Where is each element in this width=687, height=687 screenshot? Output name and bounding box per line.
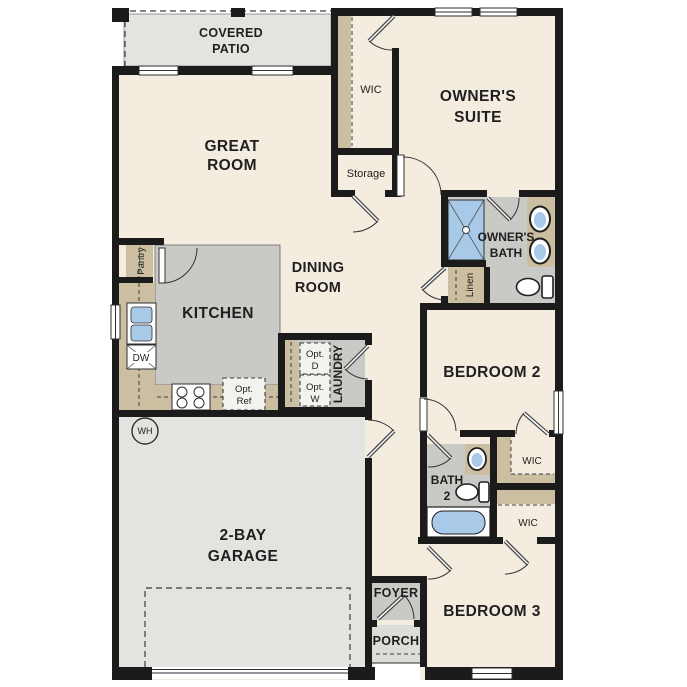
bath2-label-1: BATH — [431, 473, 463, 487]
bedroom2-label: BEDROOM 2 — [443, 364, 540, 381]
bedroom2-wic-label: WIC — [522, 456, 541, 467]
bath2-sink-icon — [468, 448, 486, 470]
owner-wic-label: WIC — [360, 84, 381, 96]
great-room-window-2 — [252, 66, 293, 75]
owners-bath-label-1: OWNER'S — [478, 230, 535, 244]
owners-suite-window-2 — [480, 8, 517, 16]
opt-washer-label-1: Opt. — [306, 382, 324, 393]
covered-patio-floor — [124, 14, 331, 66]
linen-label: Linen — [465, 273, 476, 297]
kitchen-label: KITCHEN — [182, 305, 254, 322]
wic3-top-shelf — [497, 490, 555, 504]
bedroom3-window — [472, 668, 512, 679]
kitchen-sink-icon — [127, 303, 156, 344]
outside-below-porch — [374, 663, 420, 680]
porch-label: PORCH — [373, 634, 420, 648]
dining-room-label-1: DINING — [292, 260, 345, 276]
owners-bath-label-2: BATH — [490, 246, 522, 260]
great-room-label-2: ROOM — [207, 157, 257, 174]
bedroom3-label: BEDROOM 3 — [443, 603, 540, 620]
wic2-bottom-shelf — [497, 474, 555, 483]
floorplan-canvas: COVERED PATIO GREAT ROOM WIC Storage OWN… — [0, 0, 687, 687]
bath2-tub-icon — [427, 507, 490, 537]
owners-toilet-icon — [517, 276, 554, 298]
dishwasher-label: DW — [133, 353, 150, 364]
owners-suite-window-1 — [435, 8, 472, 16]
opt-dryer-label-1: Opt. — [306, 349, 324, 360]
opt-washer-label-2: W — [311, 394, 320, 405]
owners-suite-label-2: SUITE — [454, 109, 502, 126]
opt-ref-label-2: Ref — [237, 396, 252, 407]
garage-label-1: 2-BAY — [219, 527, 266, 544]
owner-wic-shelf — [338, 15, 351, 148]
foyer-label: FOYER — [374, 586, 419, 600]
storage-label: Storage — [347, 168, 386, 180]
garage-label-2: GARAGE — [208, 548, 278, 565]
covered-patio-label-2: PATIO — [212, 42, 250, 56]
owners-suite-label-1: OWNER'S — [440, 88, 516, 105]
kitchen-window — [111, 305, 120, 339]
covered-patio-label-1: COVERED — [199, 26, 263, 40]
opt-dryer-label-2: D — [312, 361, 319, 372]
bath2-label-2: 2 — [444, 489, 451, 503]
range-icon — [172, 384, 210, 410]
great-room-window-1 — [139, 66, 178, 75]
floorplan-svg: COVERED PATIO GREAT ROOM WIC Storage OWN… — [0, 0, 687, 687]
opt-ref-label-1: Opt. — [235, 384, 253, 395]
great-room-label-1: GREAT — [204, 138, 259, 155]
bedroom3-wic-label: WIC — [518, 518, 537, 529]
dining-room-label-2: ROOM — [295, 280, 341, 296]
laundry-label: LAUNDRY — [331, 345, 345, 403]
garage-door-opening — [152, 667, 348, 679]
water-heater-label: WH — [138, 426, 153, 436]
pantry-label: Pantry — [136, 247, 147, 275]
bedroom2-window — [554, 391, 563, 434]
